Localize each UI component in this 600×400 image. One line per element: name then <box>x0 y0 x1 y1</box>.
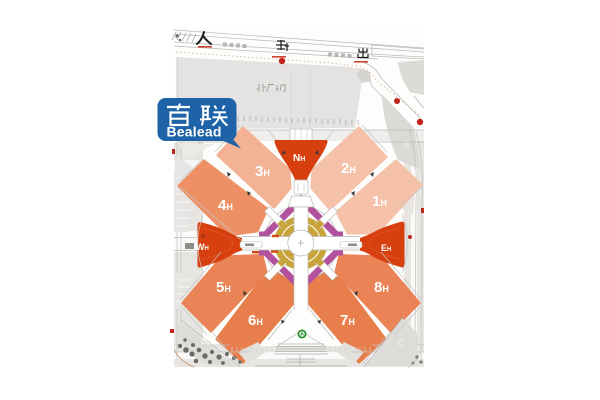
svg-text:B: B <box>404 140 409 149</box>
svg-text:Bealead: Bealead <box>167 124 222 140</box>
svg-text:D: D <box>201 337 207 346</box>
svg-text:C: C <box>398 339 404 348</box>
